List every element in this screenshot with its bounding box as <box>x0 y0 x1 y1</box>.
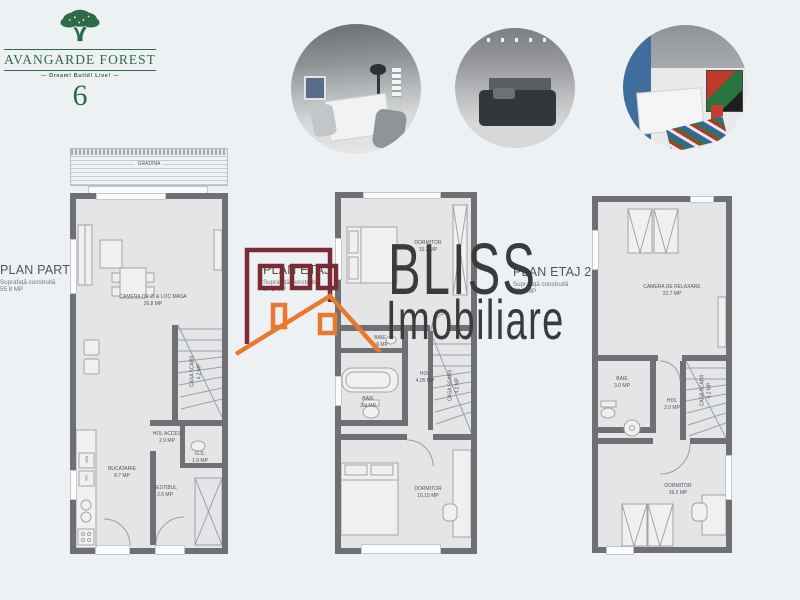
brand-rule-bottom <box>4 70 156 71</box>
room-label: HOL ACCES 2.9 MP <box>137 431 197 444</box>
room-label: HOL 2.0 MP <box>652 398 692 411</box>
hedge-texture <box>71 149 227 155</box>
photo-spotlights <box>473 38 557 43</box>
garden-label: GRADINA <box>135 161 164 167</box>
watermark-subtitle: Imobiliare <box>386 292 565 348</box>
room-label: CAMERA DE ZI & LOC MASA 26.8 MP <box>92 294 214 307</box>
building-outline: CAMERA DE ZI & LOC MASA 26.8 MP CASA SCA… <box>70 193 228 554</box>
room-label: BUCATARIE 8.7 MP <box>92 466 152 479</box>
bliss-logo-icon <box>240 244 390 359</box>
garden-area: GRADINA <box>70 148 228 186</box>
flyer-canvas: AVANGARDE FOREST — Dream! Build! Live! —… <box>0 0 800 600</box>
floor-plan-parter: GRADINA <box>70 148 230 558</box>
photo-lamp-shade <box>370 64 386 74</box>
brand-number: 6 <box>2 81 158 111</box>
photo-art <box>304 76 326 100</box>
room-label: BAIE 3.0 MP <box>602 376 642 389</box>
window-opening <box>606 546 634 555</box>
photo-floor <box>455 126 575 148</box>
tree-icon <box>53 8 107 42</box>
photo-chair <box>372 108 408 151</box>
brand-name: AVANGARDE FOREST <box>2 52 158 68</box>
room-label: BAIE 3.9 MP <box>348 396 388 409</box>
photo-window <box>392 68 401 97</box>
room-label: DORMITOR 16.2 MP <box>648 483 708 496</box>
room-label: HOL 4.05 MP <box>405 371 445 384</box>
window-opening <box>725 455 732 500</box>
photo-bedroom <box>455 28 575 148</box>
brand-rule-top <box>4 49 156 50</box>
room-label: VESTIBUL 2.6 MP <box>135 485 195 498</box>
room-label: CAMERA DE RELAXARE 22.7 MP <box>632 284 712 297</box>
photo-kids-bedroom <box>623 25 748 150</box>
appliance-label-wv: WV <box>84 474 89 480</box>
appliance-label-wm: WM <box>84 456 89 463</box>
photo-living-room <box>291 24 421 154</box>
brand-logo: AVANGARDE FOREST — Dream! Build! Live! —… <box>2 8 158 111</box>
photo-bed <box>479 90 556 126</box>
room-label-stairs: CASA SCARII 4.2 MP <box>448 358 461 414</box>
photo-pillow <box>493 88 515 99</box>
room-label-stairs: CASA SCARII 4.2 MP <box>190 344 203 400</box>
room-label: DORMITOR 16.15 MP <box>398 486 458 499</box>
room-label: G.S. 1.9 MP <box>182 451 218 464</box>
building-outline: CAMERA DE RELAXARE 22.7 MP BAIE 3.0 MP H… <box>592 196 732 553</box>
room-label-stairs: CASA SCARII 4.2 MP <box>700 363 713 419</box>
floor-plan-etaj2: CAMERA DE RELAXARE 22.7 MP BAIE 3.0 MP H… <box>592 196 732 557</box>
